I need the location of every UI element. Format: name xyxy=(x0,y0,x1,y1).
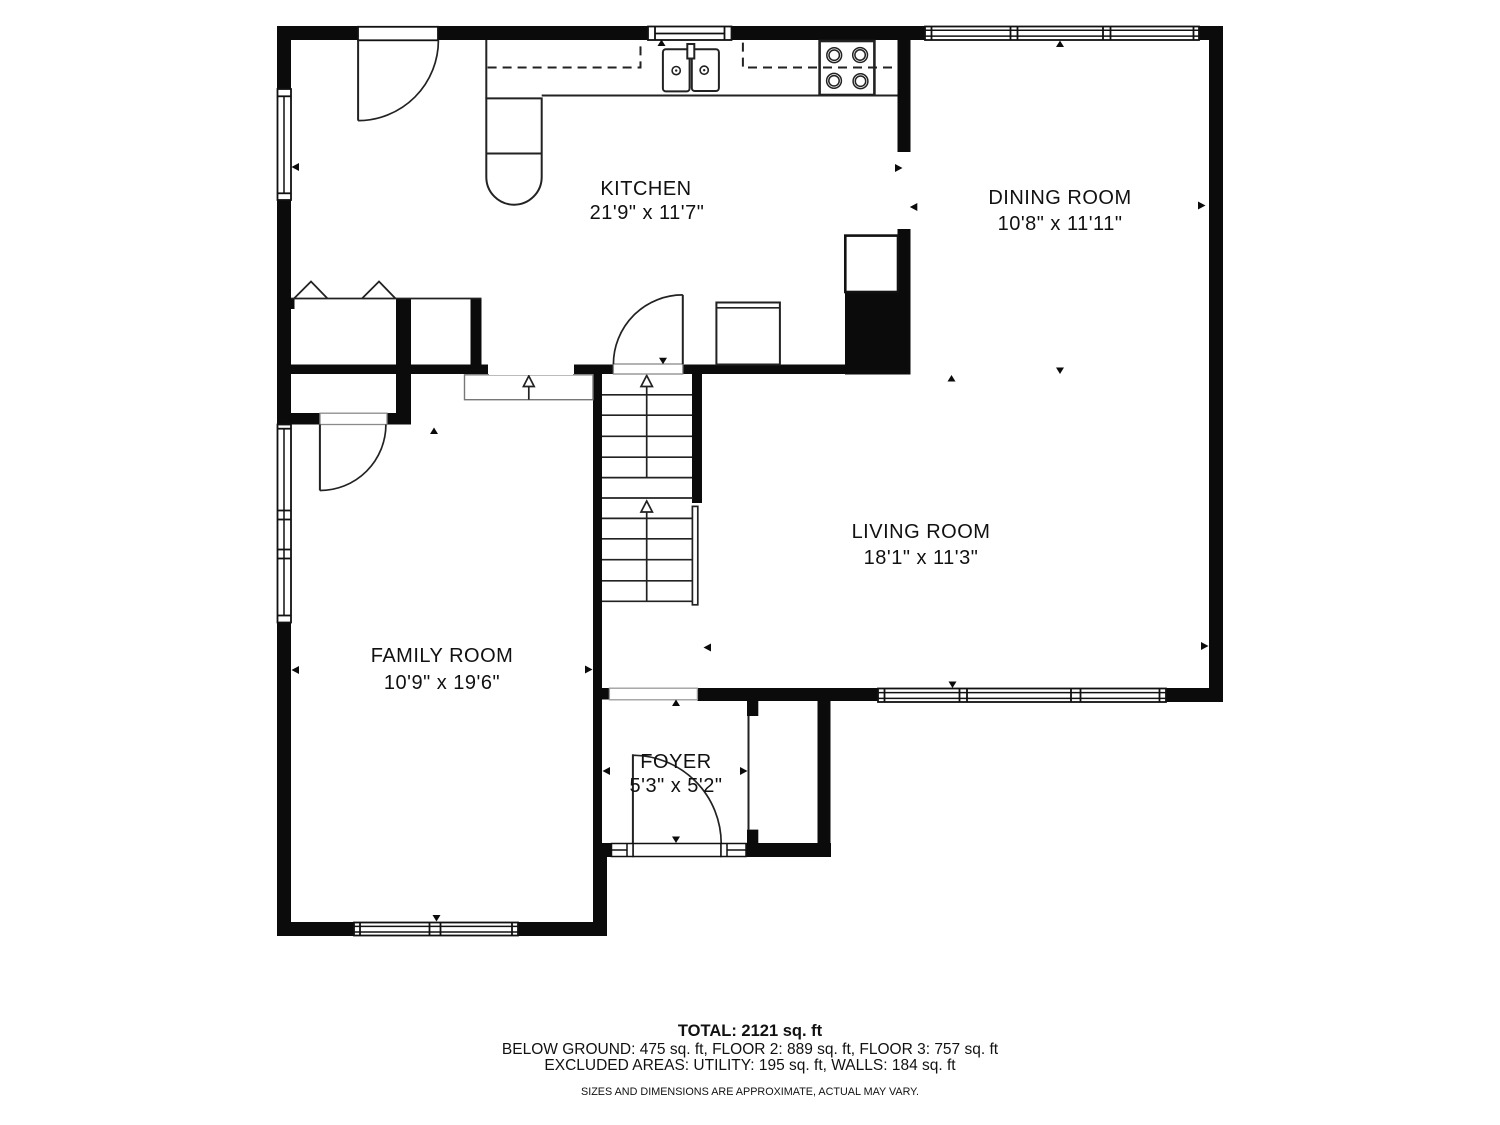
svg-text:KITCHEN: KITCHEN xyxy=(600,178,691,200)
svg-text:FOYER: FOYER xyxy=(640,751,711,773)
svg-text:DINING ROOM: DINING ROOM xyxy=(988,187,1131,209)
svg-text:LIVING ROOM: LIVING ROOM xyxy=(852,521,991,543)
svg-text:TOTAL: 2121 sq. ft: TOTAL: 2121 sq. ft xyxy=(678,1022,823,1040)
svg-text:10'9" x 19'6": 10'9" x 19'6" xyxy=(384,672,500,694)
svg-text:SIZES AND DIMENSIONS ARE APPRO: SIZES AND DIMENSIONS ARE APPROXIMATE, AC… xyxy=(581,1086,919,1098)
svg-text:21'9" x 11'7": 21'9" x 11'7" xyxy=(590,202,705,224)
svg-text:BELOW GROUND: 475 sq. ft, FLOO: BELOW GROUND: 475 sq. ft, FLOOR 2: 889 s… xyxy=(502,1041,999,1058)
svg-text:5'3" x 5'2": 5'3" x 5'2" xyxy=(630,775,723,797)
svg-text:FAMILY ROOM: FAMILY ROOM xyxy=(371,645,514,667)
svg-text:EXCLUDED AREAS: UTILITY: 195 s: EXCLUDED AREAS: UTILITY: 195 sq. ft, WAL… xyxy=(544,1057,956,1074)
svg-text:18'1" x 11'3": 18'1" x 11'3" xyxy=(864,547,979,569)
svg-text:10'8" x 11'11": 10'8" x 11'11" xyxy=(998,213,1123,235)
